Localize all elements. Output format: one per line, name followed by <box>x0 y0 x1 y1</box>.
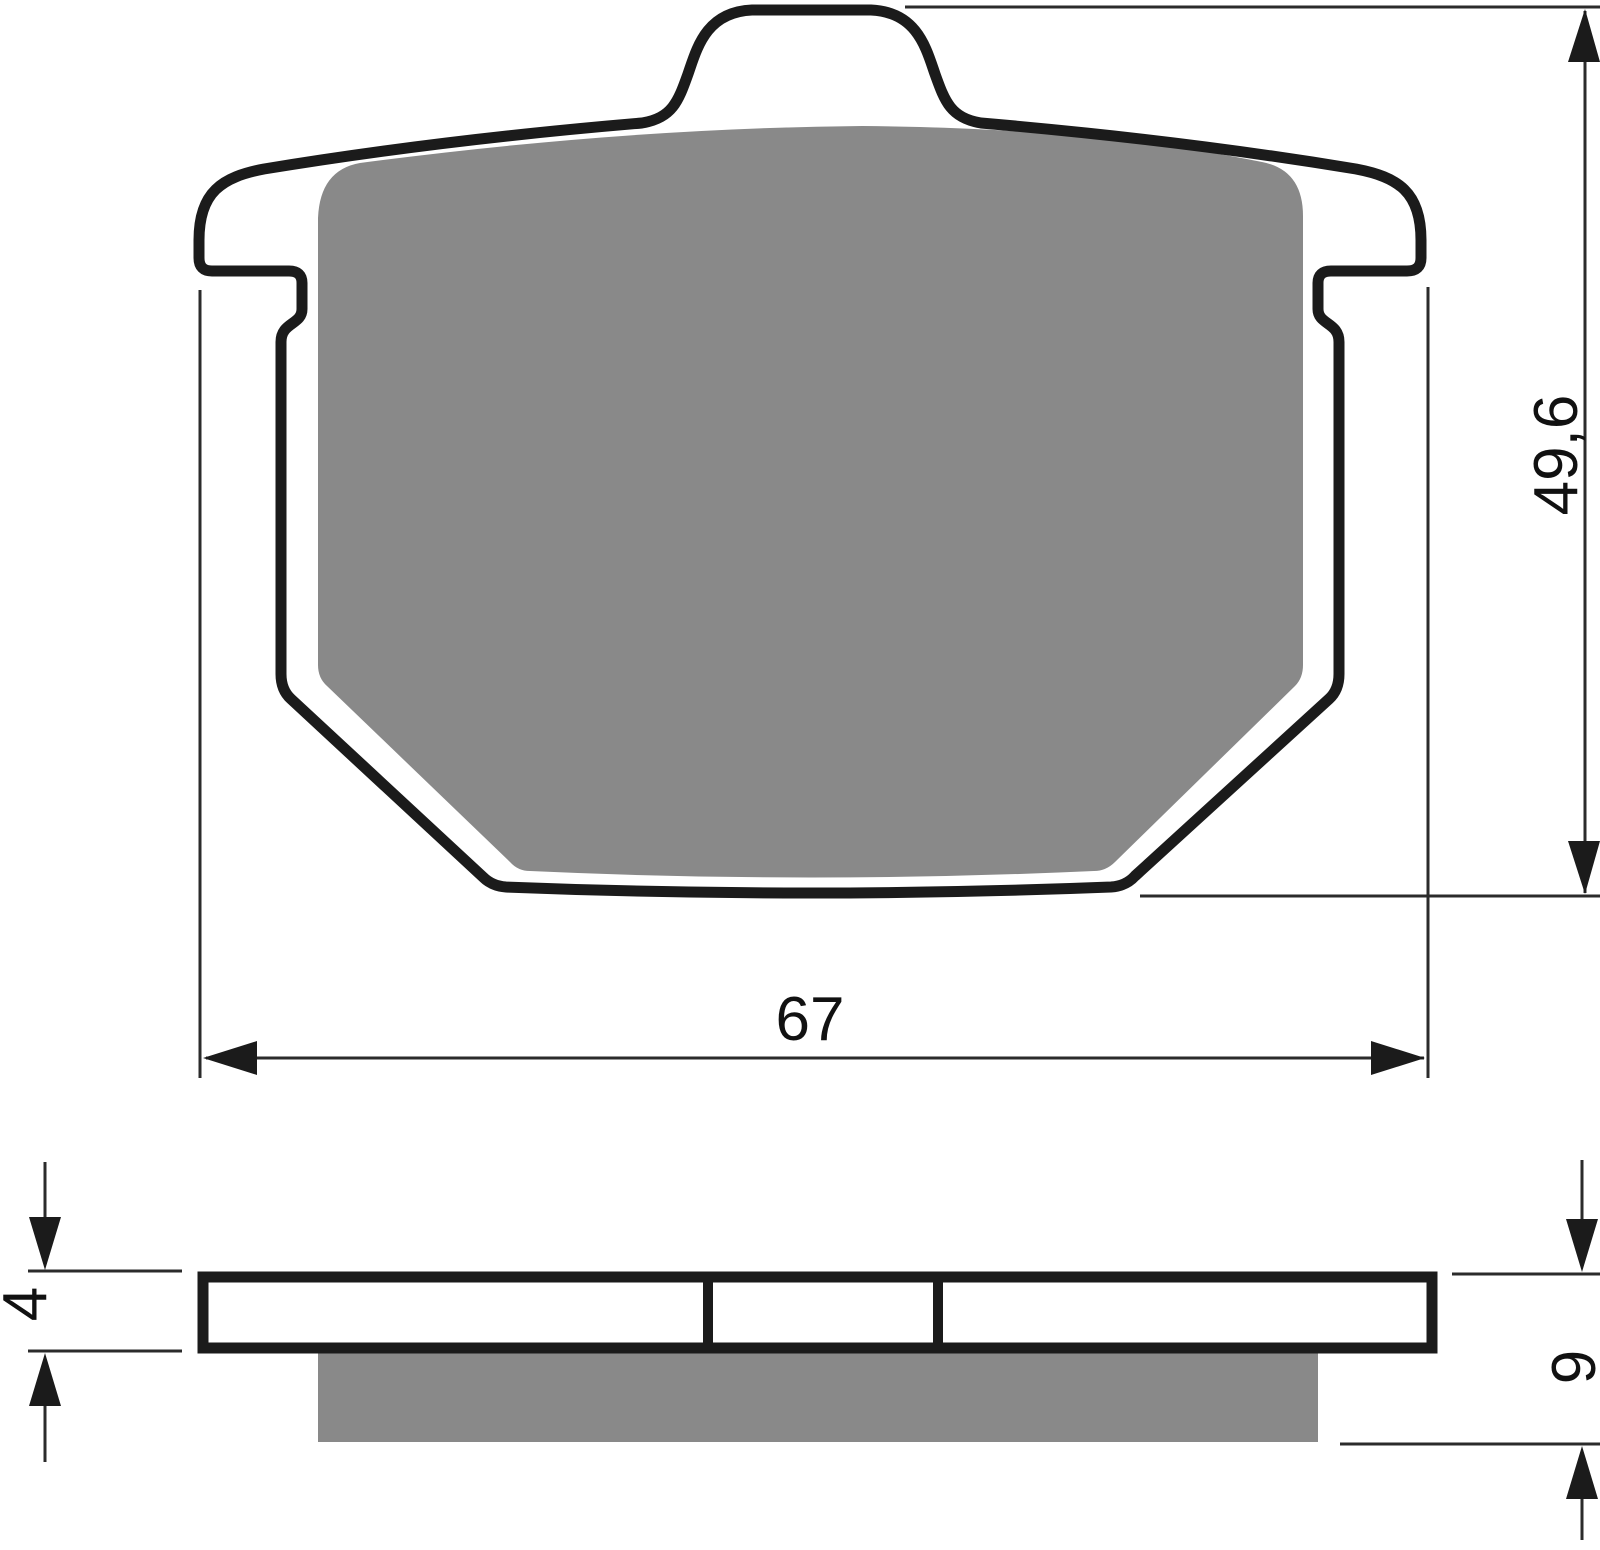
brake-pad-technical-drawing: 67 49,6 4 9 <box>0 0 1600 1550</box>
arrowhead-height-down <box>1568 841 1600 894</box>
dim-width-value: 67 <box>776 985 845 1054</box>
arrowhead-total-down <box>1566 1219 1598 1272</box>
dim-height-value: 49,6 <box>1522 395 1591 516</box>
front-view <box>199 10 1421 893</box>
arrowhead-total-up <box>1566 1446 1598 1499</box>
friction-material-side <box>318 1353 1318 1442</box>
side-view <box>203 1274 1432 1442</box>
arrowhead-height-up <box>1568 9 1600 62</box>
backplate-side <box>203 1277 1432 1348</box>
dim-backplate-value: 4 <box>0 1287 60 1321</box>
arrowhead-backplate-down <box>29 1217 61 1270</box>
friction-material-front <box>318 126 1303 878</box>
arrowhead-width-left <box>203 1041 257 1075</box>
drawing-svg: 67 49,6 4 9 <box>0 0 1600 1550</box>
arrowhead-width-right <box>1371 1041 1425 1075</box>
dim-total-value: 9 <box>1540 1350 1600 1384</box>
arrowhead-backplate-up <box>29 1353 61 1406</box>
